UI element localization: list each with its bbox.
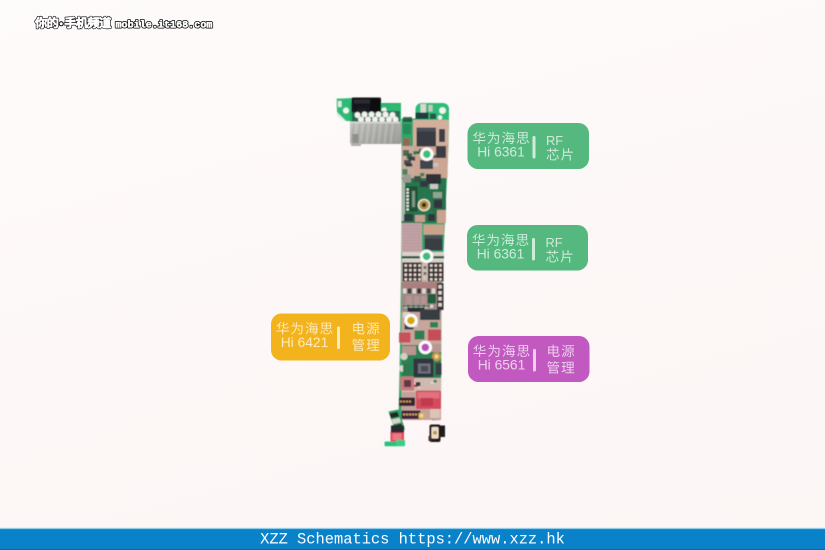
svg-text:Hi 6421: Hi 6421 [281,335,329,350]
svg-text:XZZ Schematics https://www.xzz: XZZ Schematics https://www.xzz.hk [260,531,565,549]
svg-text:RF: RF [546,133,563,148]
svg-text:Hi 6361: Hi 6361 [477,246,525,261]
svg-text:RF: RF [546,235,563,250]
svg-text:Hi 6361: Hi 6361 [477,144,525,159]
svg-text:mobile.it168.com: mobile.it168.com [116,19,213,31]
svg-text:Hi 6561: Hi 6561 [478,357,526,372]
